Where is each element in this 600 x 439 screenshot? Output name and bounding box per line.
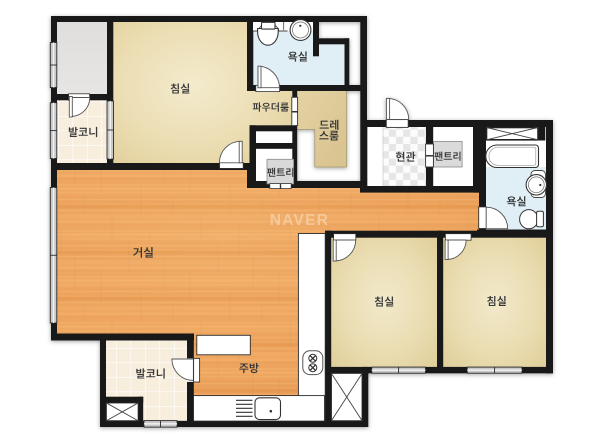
svg-text:NAVER: NAVER (270, 212, 330, 229)
